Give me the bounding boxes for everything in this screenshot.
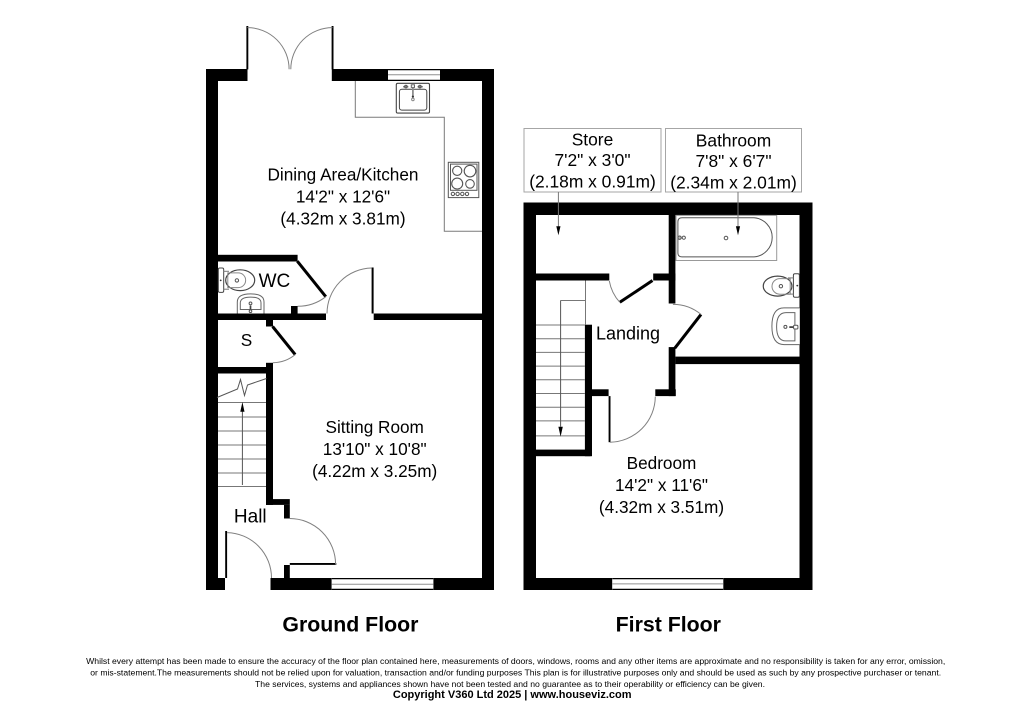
svg-text:14'2" x 12'6": 14'2" x 12'6" (296, 187, 390, 207)
svg-text:(2.34m x 2.01m): (2.34m x 2.01m) (670, 173, 797, 193)
svg-text:or mis-statement.The measureme: or mis-statement.The measurements should… (90, 668, 941, 678)
svg-text:7'2" x 3'0": 7'2" x 3'0" (554, 150, 630, 170)
svg-text:The services, systems and appl: The services, systems and appliances sho… (255, 679, 765, 689)
svg-text:(4.32m x 3.81m): (4.32m x 3.81m) (280, 209, 405, 229)
svg-text:7'8" x 6'7": 7'8" x 6'7" (695, 151, 771, 171)
svg-text:Sitting Room: Sitting Room (325, 417, 423, 437)
svg-text:S: S (241, 330, 252, 350)
svg-text:Copyright V360 Ltd 2025 | www.: Copyright V360 Ltd 2025 | www.houseviz.c… (393, 689, 632, 701)
svg-text:(4.22m x 3.25m): (4.22m x 3.25m) (312, 461, 437, 481)
svg-text:Bedroom: Bedroom (627, 453, 697, 473)
svg-text:14'2" x 11'6": 14'2" x 11'6" (615, 475, 708, 495)
svg-text:13'10" x 10'8": 13'10" x 10'8" (323, 439, 427, 459)
svg-text:Store: Store (572, 130, 614, 150)
svg-text:First Floor: First Floor (616, 613, 721, 637)
svg-text:Whilst every attempt has been: Whilst every attempt has been made to en… (86, 656, 945, 666)
svg-text:WC: WC (259, 271, 291, 292)
svg-text:Dining Area/Kitchen: Dining Area/Kitchen (268, 165, 419, 185)
svg-text:(2.18m x 0.91m): (2.18m x 0.91m) (529, 171, 656, 191)
svg-text:(4.32m x 3.51m): (4.32m x 3.51m) (599, 497, 724, 517)
svg-text:Ground Floor: Ground Floor (282, 613, 418, 637)
svg-text:Bathroom: Bathroom (696, 130, 771, 150)
svg-text:Landing: Landing (596, 324, 660, 344)
svg-text:Hall: Hall (234, 507, 267, 528)
